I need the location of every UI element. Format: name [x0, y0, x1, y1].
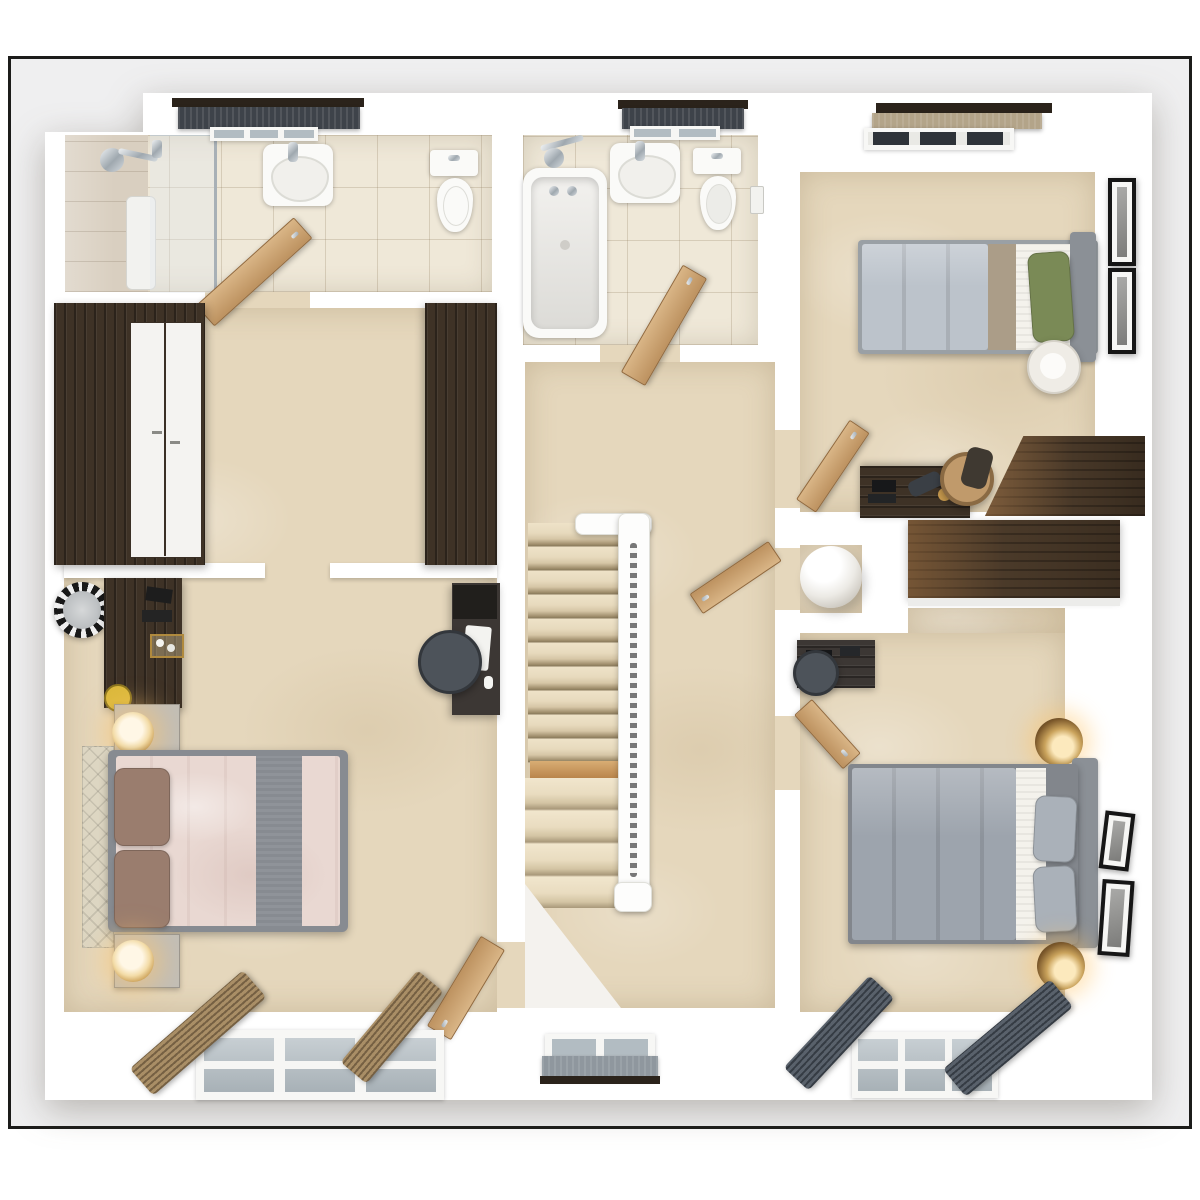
door-handle-icon: [850, 431, 858, 440]
bedroom2-picture-frame-1: [1108, 178, 1136, 266]
wardrobe-door-split: [164, 322, 166, 556]
master-window-frame: [196, 1030, 444, 1100]
dressing-wardrobe-right: [425, 303, 497, 565]
makeup-box: [145, 586, 173, 603]
table-lamp-bottom: [112, 940, 154, 982]
door-handle-icon: [686, 277, 693, 286]
bathtub-basin: [531, 177, 599, 329]
en-suite-toilet-seat: [443, 186, 469, 226]
master-window-panes: [204, 1038, 436, 1092]
bedroom2-floor-lamp: [1027, 340, 1081, 394]
en-suite-washbasin: [263, 144, 333, 206]
bedroom2-runner: [988, 244, 1016, 350]
bedroom2-picture-frame-2: [1108, 268, 1136, 354]
bedroom3-picture-frame-2: [1097, 879, 1134, 957]
table-lamp-top: [112, 712, 154, 754]
bedroom2-headboard: [1070, 232, 1096, 362]
shower-glass-screen: [150, 135, 217, 293]
hot-water-cylinder: [800, 546, 862, 608]
door-handle-icon: [291, 231, 300, 239]
master-desk-chair: [418, 630, 482, 694]
bathroom-flush-button: [711, 153, 723, 159]
bedroom3-pillow-top: [1032, 795, 1077, 863]
perfume-bottle-2: [167, 644, 175, 652]
bedroom2-window-pelmet: [876, 103, 1052, 113]
en-suite-flush-button: [448, 155, 460, 161]
staircase-lower-flight: [525, 778, 618, 908]
bedroom3-duvet: [852, 768, 1016, 940]
picture-image: [1117, 277, 1127, 345]
bathroom-toilet-seat: [706, 184, 732, 224]
desk-item-2: [868, 494, 896, 503]
bathroom-basin-bowl: [618, 155, 676, 199]
bedroom2-khaki-blind: [872, 113, 1042, 129]
master-desk-monitor: [453, 585, 497, 619]
wardrobe-handle-left: [152, 431, 162, 434]
bathroom-window-frame: [630, 126, 720, 140]
dressing-wardrobe-left: [54, 303, 205, 565]
bedroom2-green-pillow: [1027, 251, 1075, 344]
landing-roller-blind: [542, 1056, 658, 1078]
makeup-tray: [142, 610, 172, 622]
bathroom-basin-tap: [635, 141, 645, 161]
bedroom3-floor-strip: [908, 608, 1065, 633]
bathtub: [523, 168, 607, 338]
bedroom2-window-panes: [868, 132, 1010, 145]
floor-plan-screenshot: [0, 0, 1200, 1200]
divider-wall-right: [330, 563, 497, 578]
round-mirror: [54, 582, 110, 638]
en-suite-window-panes: [214, 130, 314, 138]
picture-image: [1117, 187, 1127, 257]
floor-lamp-shade: [1040, 353, 1066, 379]
banister-spindles: [630, 543, 637, 877]
landing-window-panes: [552, 1039, 648, 1057]
bedroom2-duvet: [862, 244, 988, 350]
mirror-glass: [63, 591, 101, 629]
staircase-wood-step: [530, 761, 618, 778]
en-suite-basin-bowl: [271, 156, 329, 202]
master-mouse: [484, 676, 493, 689]
desk-item-2: [840, 646, 860, 656]
door-handle-icon: [441, 1019, 449, 1028]
master-pillow-top: [114, 768, 170, 846]
perfume-bottle-1: [156, 639, 164, 647]
shower-valve: [152, 140, 162, 158]
desk-item-1: [872, 480, 896, 492]
en-suite-window-pelmet: [172, 98, 364, 107]
staircase-upper-flight: [528, 523, 618, 763]
en-suite-toilet-cistern: [430, 150, 478, 176]
toilet-roll-holder: [750, 186, 764, 214]
en-suite-roller-blind: [178, 107, 360, 129]
bathroom-washbasin: [610, 143, 680, 203]
bedroom3-wardrobe-ledge: [908, 598, 1120, 606]
wardrobe-white-doors: [130, 322, 202, 558]
bedroom3-chair: [793, 650, 839, 696]
bath-tap-2: [567, 186, 577, 196]
bedroom2-window-frame: [864, 128, 1014, 150]
master-pillow-bottom: [114, 850, 170, 928]
bath-tap-1: [549, 186, 559, 196]
bedroom2-doorway: [775, 430, 800, 508]
landing-blind-bar: [540, 1076, 660, 1084]
newel-post: [614, 882, 652, 912]
bedroom3-fitted-wardrobe: [908, 520, 1120, 598]
bedroom3-doorway: [775, 716, 800, 790]
en-suite-window-frame: [210, 127, 318, 141]
door-handle-icon: [701, 594, 710, 602]
divider-wall-left: [64, 563, 265, 578]
bedroom3-pillow-bottom: [1032, 865, 1077, 933]
en-suite-basin-tap: [288, 142, 298, 162]
master-bed-runner: [256, 756, 302, 926]
door-handle-icon: [840, 749, 848, 758]
bath-drain: [560, 240, 570, 250]
bathroom-window-panes: [634, 129, 716, 137]
wardrobe-handle-right: [170, 441, 180, 444]
bath-shower-head: [544, 148, 564, 168]
bathroom-toilet-cistern: [693, 148, 741, 174]
